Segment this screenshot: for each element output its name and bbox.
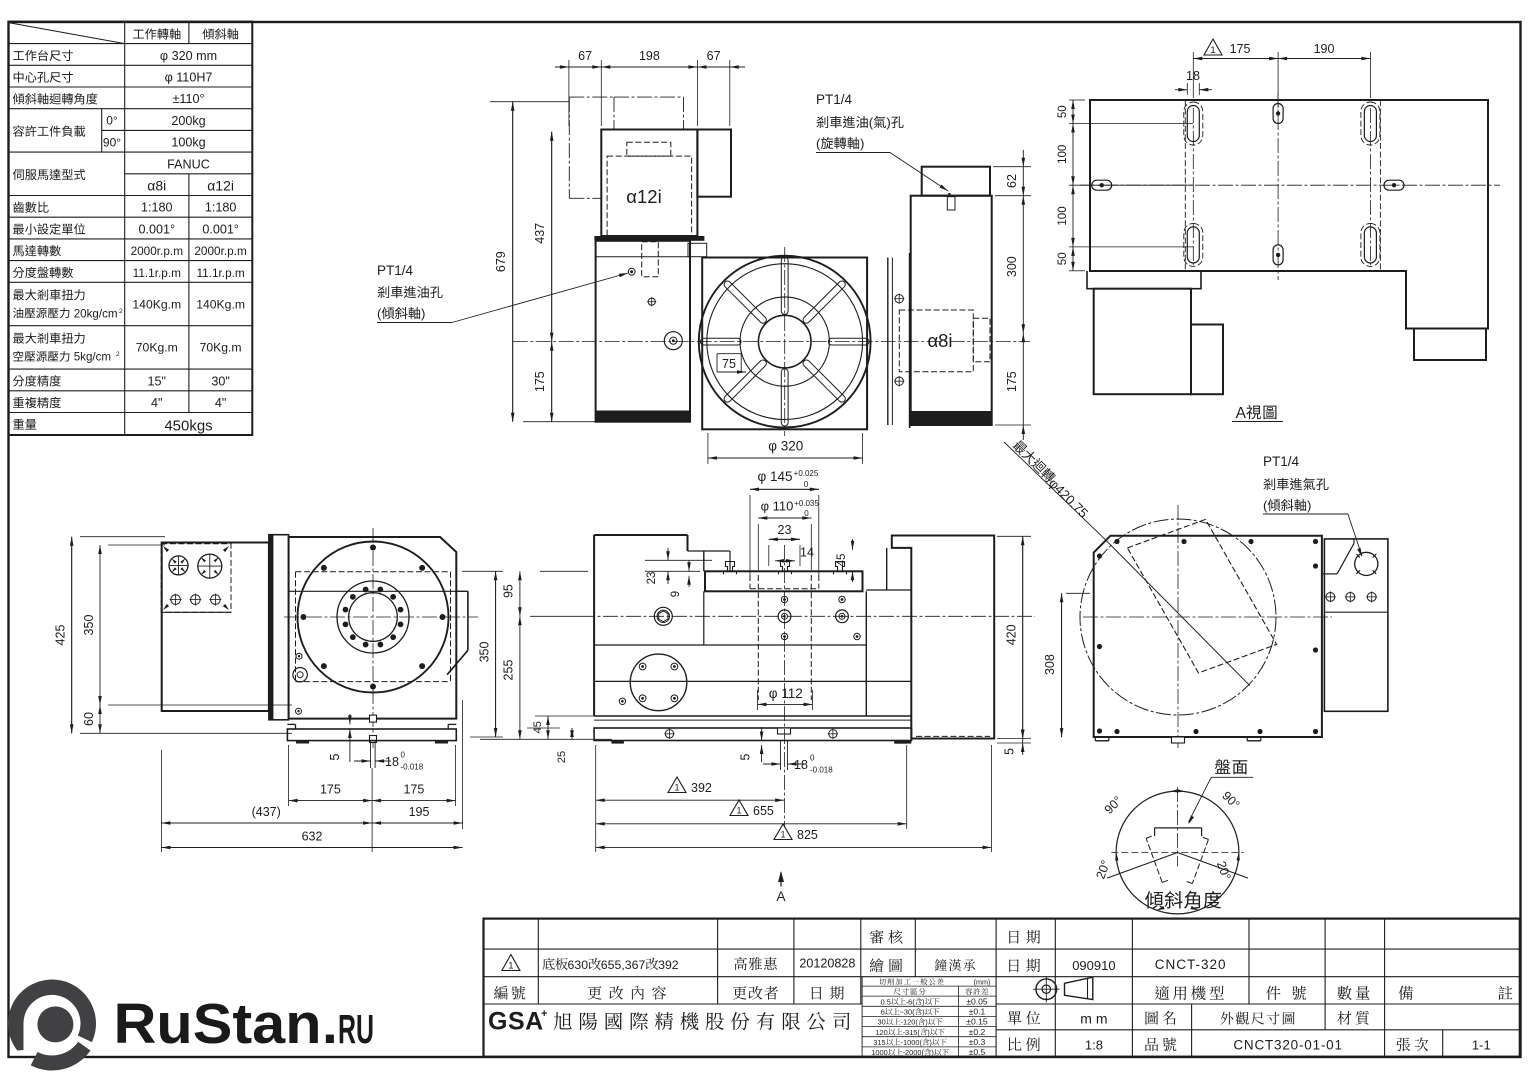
svg-text:φ 320 mm: φ 320 mm: [160, 49, 217, 63]
svg-text:±110°: ±110°: [172, 92, 204, 106]
svg-text:±0.1: ±0.1: [969, 1007, 986, 1017]
svg-text:(437): (437): [252, 805, 281, 819]
svg-text:1:8: 1:8: [1085, 1038, 1103, 1053]
svg-text:655,367: 655,367: [601, 958, 646, 972]
svg-text:0: 0: [810, 754, 815, 763]
svg-text:95: 95: [502, 584, 516, 598]
svg-text:300: 300: [1005, 256, 1019, 277]
svg-text:630: 630: [568, 958, 589, 972]
svg-text:1:180: 1:180: [141, 201, 173, 215]
svg-text:100: 100: [1057, 145, 1069, 164]
svg-text:(: (: [816, 136, 821, 151]
svg-text:1: 1: [780, 830, 785, 840]
svg-text:200kg: 200kg: [171, 114, 205, 128]
svg-text:308: 308: [1043, 654, 1057, 675]
svg-text:0°: 0°: [106, 114, 118, 128]
svg-text:2000r.p.m: 2000r.p.m: [131, 244, 184, 258]
svg-text:A: A: [776, 889, 785, 904]
svg-text:.: .: [322, 992, 338, 1056]
svg-text:5: 5: [739, 753, 753, 760]
svg-text:23: 23: [646, 572, 658, 585]
svg-text:190: 190: [1314, 42, 1335, 56]
svg-text:70Kg.m: 70Kg.m: [200, 341, 242, 355]
svg-text:0: 0: [804, 509, 809, 518]
svg-text:±0.5: ±0.5: [969, 1047, 986, 1057]
svg-text:315: 315: [873, 1038, 885, 1047]
svg-text:±0.05: ±0.05: [966, 996, 988, 1006]
svg-text:679: 679: [494, 251, 508, 272]
svg-text:1: 1: [736, 806, 741, 816]
svg-text:CNCT-320: CNCT-320: [1155, 957, 1227, 972]
svg-text:437: 437: [533, 223, 547, 244]
svg-text:175: 175: [533, 371, 547, 392]
svg-text:(: (: [1263, 498, 1268, 513]
svg-text:2: 2: [119, 308, 123, 315]
svg-text:25: 25: [556, 751, 568, 763]
svg-text:75: 75: [722, 357, 736, 371]
svg-text:11.1r.p.m: 11.1r.p.m: [133, 266, 181, 280]
svg-text:+: +: [541, 1008, 547, 1020]
svg-text:0.001°: 0.001°: [139, 222, 176, 236]
svg-text:15": 15": [148, 374, 166, 388]
svg-text:45: 45: [836, 554, 848, 567]
svg-text:420: 420: [1004, 624, 1018, 645]
svg-text:140Kg.m: 140Kg.m: [132, 297, 181, 311]
svg-text:392: 392: [691, 781, 712, 795]
svg-text:α8i: α8i: [927, 330, 952, 351]
svg-text:67: 67: [578, 49, 592, 63]
svg-text:4": 4": [215, 396, 226, 410]
svg-text:655: 655: [753, 804, 774, 818]
svg-text:(: (: [869, 115, 874, 130]
svg-text:90°: 90°: [103, 135, 121, 149]
svg-text:): ): [931, 1048, 933, 1057]
svg-text:45: 45: [532, 721, 544, 733]
svg-text:(mm): (mm): [974, 977, 991, 986]
svg-text:1000: 1000: [871, 1048, 887, 1057]
svg-text:0: 0: [401, 751, 406, 760]
svg-text:(: (: [377, 306, 382, 321]
svg-text:5: 5: [1003, 748, 1017, 755]
svg-text:20kg/cm: 20kg/cm: [71, 307, 118, 320]
svg-text:2: 2: [116, 351, 120, 358]
svg-text:±0.15: ±0.15: [966, 1017, 988, 1027]
svg-text:60: 60: [82, 712, 96, 726]
svg-text:23: 23: [778, 523, 792, 537]
svg-text:6: 6: [881, 1008, 885, 1017]
svg-text:1: 1: [674, 783, 679, 793]
svg-text:67: 67: [707, 49, 721, 63]
svg-text:632: 632: [302, 830, 323, 844]
svg-text:392: 392: [658, 958, 679, 972]
svg-text:14: 14: [800, 546, 814, 560]
svg-text:RU: RU: [338, 1006, 374, 1052]
svg-text:090910: 090910: [1072, 958, 1115, 973]
svg-text:100: 100: [1057, 206, 1069, 225]
svg-text:φ 112: φ 112: [769, 686, 803, 701]
svg-text:450kgs: 450kgs: [164, 418, 212, 435]
svg-text:350: 350: [477, 642, 491, 663]
svg-text:φ 145: φ 145: [757, 469, 792, 484]
svg-text:RuStan: RuStan: [114, 992, 322, 1056]
svg-text:): ): [1307, 498, 1311, 513]
svg-text:-1000(: -1000(: [901, 1038, 923, 1047]
svg-text:CNCT320-01-01: CNCT320-01-01: [1233, 1038, 1342, 1053]
svg-text:±0.2: ±0.2: [969, 1027, 986, 1037]
svg-text:): ): [421, 306, 425, 321]
svg-text:FANUC: FANUC: [167, 157, 210, 171]
svg-text:5: 5: [328, 753, 342, 760]
svg-text:255: 255: [502, 660, 516, 681]
svg-text:α12i: α12i: [626, 186, 661, 207]
svg-text:30: 30: [878, 1018, 886, 1027]
svg-text:PT1/4: PT1/4: [816, 92, 853, 107]
svg-text:70Kg.m: 70Kg.m: [136, 341, 178, 355]
svg-text:50: 50: [1057, 105, 1069, 118]
svg-text:195: 195: [409, 805, 430, 819]
svg-text:-315(: -315(: [903, 1028, 921, 1037]
svg-text:0.5: 0.5: [881, 997, 891, 1006]
svg-text:0.001°: 0.001°: [202, 222, 239, 236]
svg-text:): ): [925, 1018, 927, 1027]
svg-text:20120828: 20120828: [799, 957, 855, 971]
svg-text:198: 198: [639, 49, 660, 63]
svg-text:+0.025: +0.025: [794, 469, 819, 478]
svg-text:): ): [922, 1008, 924, 1017]
svg-text:~30(: ~30(: [900, 1008, 916, 1017]
svg-text:A: A: [1236, 405, 1247, 422]
svg-text:120: 120: [875, 1028, 887, 1037]
svg-text:): ): [860, 136, 864, 151]
svg-text:-120(: -120(: [901, 1018, 919, 1027]
svg-text:425: 425: [54, 625, 68, 646]
svg-text:+0.035: +0.035: [794, 499, 819, 508]
svg-text:PT1/4: PT1/4: [1263, 454, 1300, 469]
svg-text:): ): [927, 1028, 929, 1037]
svg-text:175: 175: [1005, 371, 1019, 392]
svg-text:100kg: 100kg: [171, 136, 205, 150]
svg-text:-6(: -6(: [906, 997, 916, 1006]
svg-text:140Kg.m: 140Kg.m: [196, 297, 245, 311]
svg-text:): ): [922, 997, 924, 1006]
svg-text:m m: m m: [1080, 1011, 1107, 1027]
svg-text:-2000(: -2000(: [903, 1048, 925, 1057]
svg-text:62: 62: [1005, 174, 1019, 188]
svg-text:): ): [929, 1038, 931, 1047]
svg-text:825: 825: [797, 828, 818, 842]
svg-text:18: 18: [794, 758, 808, 772]
svg-text:350: 350: [82, 615, 96, 636]
svg-text:50: 50: [1057, 252, 1069, 265]
svg-text:α12i: α12i: [207, 177, 234, 193]
svg-text:-0.018: -0.018: [810, 766, 833, 775]
svg-text:±0.3: ±0.3: [969, 1037, 986, 1047]
svg-text:φ 110: φ 110: [761, 499, 794, 514]
svg-text:4": 4": [151, 396, 162, 410]
svg-text:18: 18: [1186, 69, 1200, 83]
svg-text:1: 1: [508, 961, 513, 972]
svg-text:175: 175: [320, 783, 341, 797]
svg-text:GSA: GSA: [488, 1008, 544, 1036]
svg-text:0: 0: [804, 480, 809, 489]
svg-text:1:180: 1:180: [205, 201, 237, 215]
svg-text:1-1: 1-1: [1472, 1038, 1491, 1053]
svg-text:18: 18: [385, 755, 399, 769]
svg-text:φ 110H7: φ 110H7: [165, 71, 213, 85]
svg-text:-0.018: -0.018: [401, 763, 424, 772]
svg-text:5kg/cm: 5kg/cm: [71, 351, 112, 364]
svg-text:2000r.p.m: 2000r.p.m: [194, 244, 247, 258]
svg-text:1: 1: [1210, 45, 1215, 56]
svg-text:): ): [886, 115, 890, 130]
svg-text:PT1/4: PT1/4: [377, 263, 414, 278]
svg-text:175: 175: [403, 783, 424, 797]
svg-text:9: 9: [670, 591, 682, 597]
svg-text:α8i: α8i: [147, 177, 166, 193]
svg-text:175: 175: [1230, 42, 1251, 56]
svg-text:φ 320: φ 320: [768, 439, 803, 454]
svg-text:11.1r.p.m: 11.1r.p.m: [196, 266, 244, 280]
svg-text:30": 30": [211, 374, 229, 388]
